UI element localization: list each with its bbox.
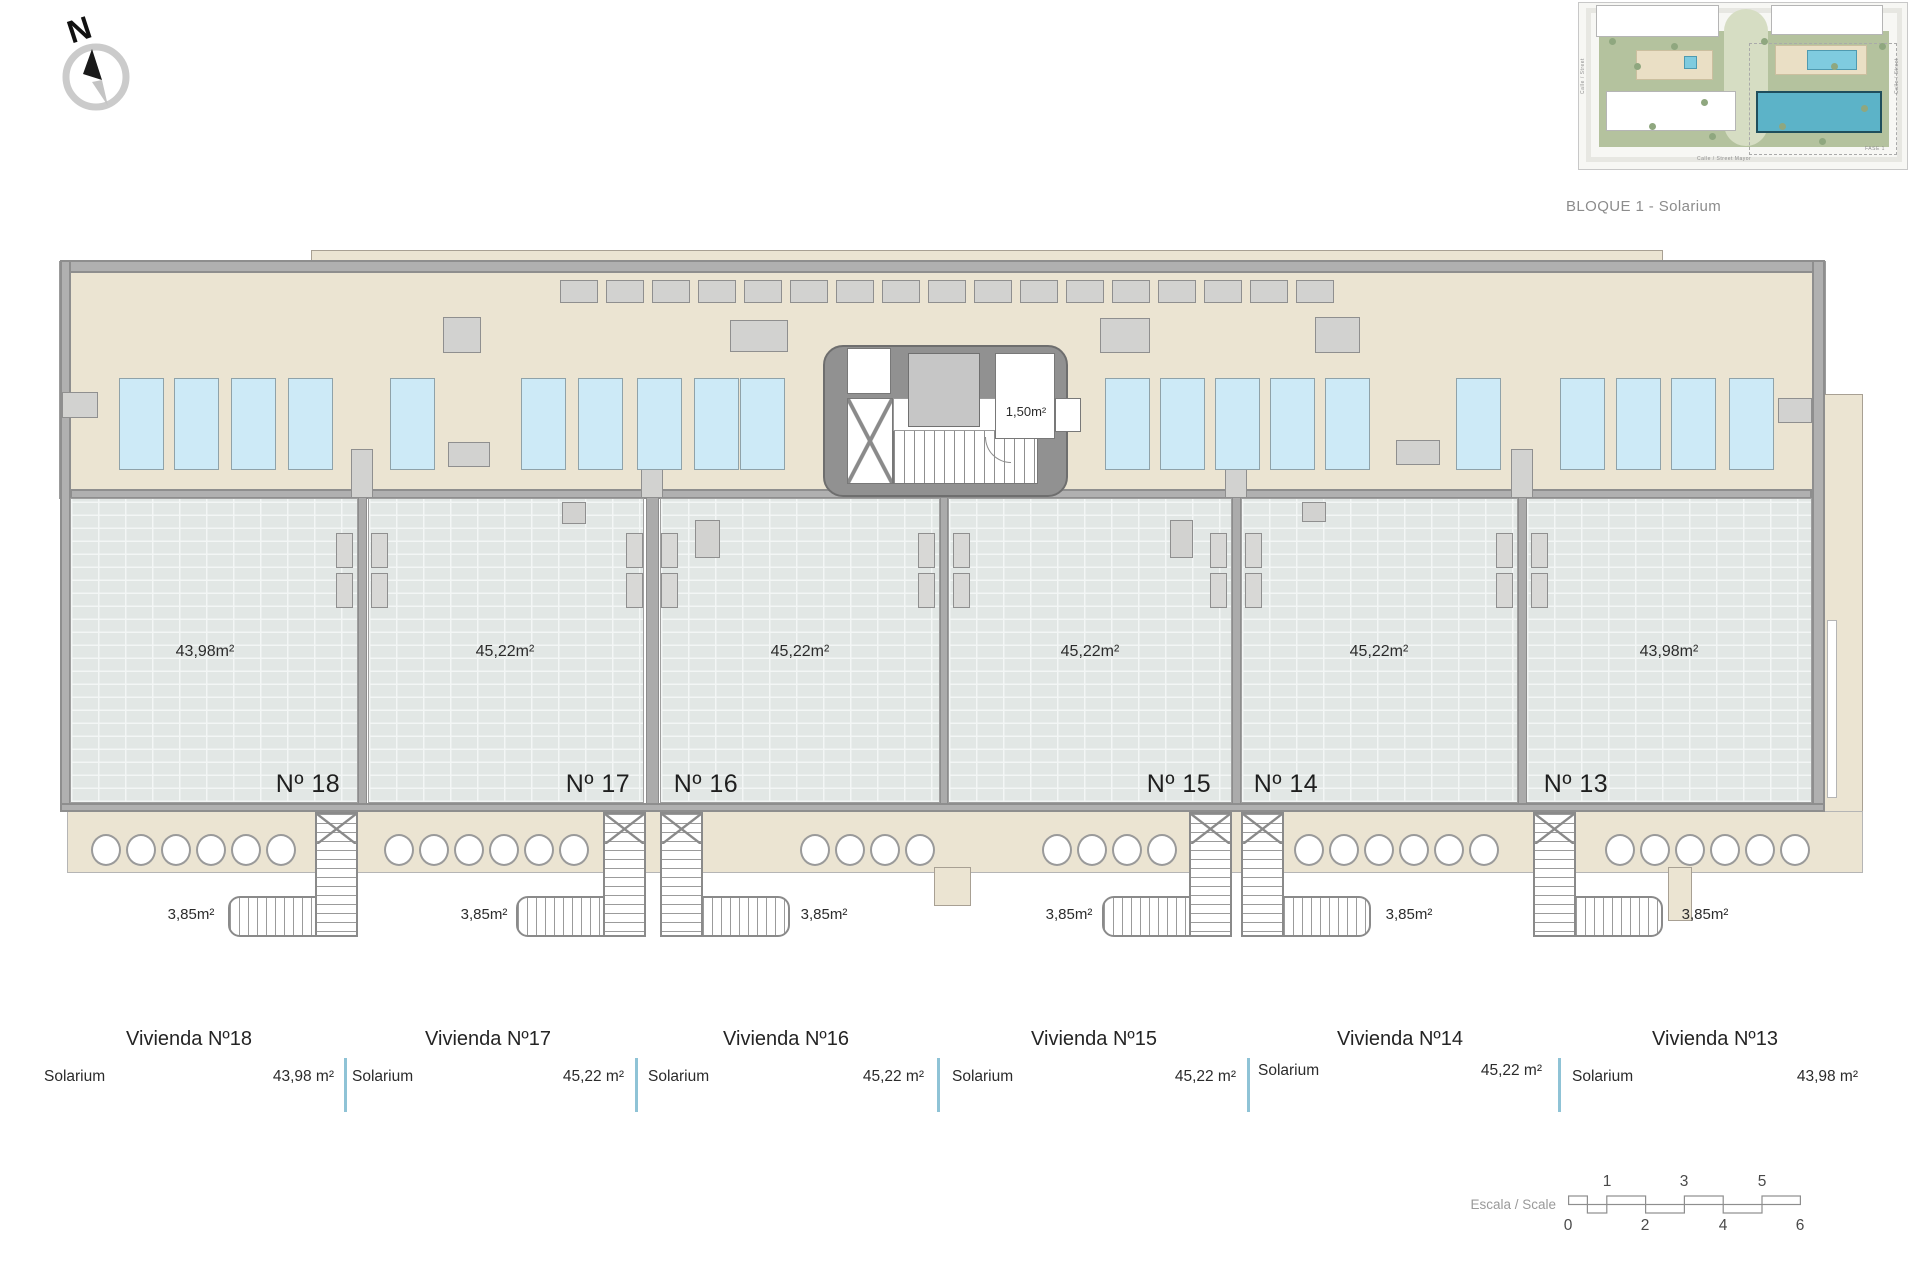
outer-wall-top	[60, 260, 1825, 273]
legend-column-16: Vivienda Nº16 Solarium45,22 m²	[648, 1028, 924, 1086]
solar-panel	[1325, 378, 1370, 470]
sun-lounger	[1210, 533, 1227, 568]
divider-pillar	[1511, 449, 1533, 498]
terrace-vent-box	[1302, 502, 1326, 522]
planter-circle	[524, 834, 554, 866]
legend-separator	[1247, 1058, 1250, 1112]
sun-lounger	[626, 533, 643, 568]
planter-circle	[231, 834, 261, 866]
planter-circle	[489, 834, 519, 866]
legend-title: Vivienda Nº14	[1258, 1028, 1542, 1051]
deck-machine-box	[730, 320, 788, 352]
sun-lounger	[371, 573, 388, 608]
deck-equipment-unit	[882, 280, 920, 303]
stair-tower-winder	[1191, 814, 1230, 844]
planter-circle	[1147, 834, 1177, 866]
core-winder-lines	[848, 399, 892, 483]
deck-equipment-unit	[836, 280, 874, 303]
sun-lounger	[918, 533, 935, 568]
planter-circle	[196, 834, 226, 866]
terrace-vent-box	[695, 520, 720, 558]
planter-circle	[835, 834, 865, 866]
stair-tower-winder	[1243, 814, 1282, 844]
solar-panel	[637, 378, 682, 470]
planter-circle	[1605, 834, 1635, 866]
legend-title: Vivienda Nº17	[352, 1028, 624, 1051]
solar-panel	[1671, 378, 1716, 470]
terrace-divider-wall	[646, 498, 659, 803]
unit-number-label-14: Nº 14	[1216, 770, 1356, 799]
sun-lounger	[661, 533, 678, 568]
stair-area-label-15: 3,85m²	[1009, 906, 1129, 923]
sun-lounger	[626, 573, 643, 608]
scale-tick: 1	[1595, 1173, 1619, 1191]
legend-row-value: 45,22 m²	[863, 1068, 924, 1086]
planter-circle	[384, 834, 414, 866]
scale-tick: 5	[1750, 1173, 1774, 1191]
planter-circle	[1434, 834, 1464, 866]
scale-tick: 2	[1633, 1217, 1657, 1235]
planter-circle	[1112, 834, 1142, 866]
planter-circle	[1780, 834, 1810, 866]
planter-circle	[870, 834, 900, 866]
legend-title: Vivienda Nº16	[648, 1028, 924, 1051]
terrace-area-label-13: 43,98m²	[1599, 643, 1739, 661]
sun-lounger	[1245, 573, 1262, 608]
solar-panel	[390, 378, 435, 470]
planter-circle	[1077, 834, 1107, 866]
legend-title: Vivienda Nº15	[952, 1028, 1236, 1051]
stair-area-label-13: 3,85m²	[1645, 906, 1765, 923]
planter-circle	[800, 834, 830, 866]
deck-equipment-unit	[1112, 280, 1150, 303]
legend-row-label: Solarium	[1572, 1068, 1633, 1086]
deck-vent-box	[448, 442, 490, 467]
deck-equipment-unit	[1204, 280, 1242, 303]
deck-equipment-unit	[790, 280, 828, 303]
planter-circle	[1675, 834, 1705, 866]
scale-tick: 0	[1556, 1217, 1580, 1235]
legend-separator	[937, 1058, 940, 1112]
sun-lounger	[336, 533, 353, 568]
scale-tick: 4	[1711, 1217, 1735, 1235]
legend-row-label: Solarium	[952, 1068, 1013, 1086]
terrace-bottom-wall	[60, 803, 1825, 812]
core-room	[847, 348, 891, 394]
deck-equipment-unit	[1066, 280, 1104, 303]
legend-row-value: 43,98 m²	[1797, 1068, 1858, 1086]
legend-column-13: Vivienda Nº13 Solarium43,98 m²	[1572, 1028, 1858, 1086]
sun-lounger	[371, 533, 388, 568]
stair-area-label-17: 3,85m²	[424, 906, 544, 923]
solar-panel	[231, 378, 276, 470]
terrace-area-label-16: 45,22m²	[730, 643, 870, 661]
solar-panel	[1270, 378, 1315, 470]
sun-lounger	[1245, 533, 1262, 568]
sun-lounger	[336, 573, 353, 608]
legend-separator	[1558, 1058, 1561, 1112]
sun-lounger	[1531, 533, 1548, 568]
stair-area-label-16: 3,85m²	[764, 906, 884, 923]
solar-panel	[1160, 378, 1205, 470]
terrace-divider-wall	[940, 498, 948, 803]
sun-lounger	[1531, 573, 1548, 608]
deck-vent-box	[1396, 440, 1440, 465]
sun-lounger	[661, 573, 678, 608]
stair-area-label-14: 3,85m²	[1349, 906, 1469, 923]
terrace-area-label-17: 45,22m²	[435, 643, 575, 661]
planter-circle	[1329, 834, 1359, 866]
solar-panel	[1729, 378, 1774, 470]
core-door-stub	[1055, 398, 1081, 432]
sun-lounger	[1496, 573, 1513, 608]
planter-circle	[559, 834, 589, 866]
sun-lounger	[918, 573, 935, 608]
terrace-vent-box	[1170, 520, 1193, 558]
right-annex-slot	[1827, 620, 1837, 798]
planter-circle	[266, 834, 296, 866]
planter-circle	[419, 834, 449, 866]
legend-column-17: Vivienda Nº17 Solarium45,22 m²	[352, 1028, 624, 1086]
planter-circle	[454, 834, 484, 866]
deck-equipment-unit	[560, 280, 598, 303]
stair-tower-winder	[605, 814, 644, 844]
planter-circle	[1399, 834, 1429, 866]
divider-pillar	[351, 449, 373, 498]
planter-circle	[1745, 834, 1775, 866]
deck-machine-box	[443, 317, 481, 353]
legend-title: Vivienda Nº18	[44, 1028, 334, 1051]
solar-panel	[1105, 378, 1150, 470]
solar-panel	[694, 378, 739, 470]
solar-panel	[174, 378, 219, 470]
terrace-area-label-14: 45,22m²	[1309, 643, 1449, 661]
stair-tower-winder	[317, 814, 356, 844]
deck-equipment-unit	[1250, 280, 1288, 303]
deck-equipment-unit	[1020, 280, 1058, 303]
floorplan-canvas	[0, 0, 1920, 1280]
scale-tick: 6	[1788, 1217, 1812, 1235]
sun-lounger	[1210, 573, 1227, 608]
legend-row-label: Solarium	[352, 1068, 413, 1086]
solar-panel	[578, 378, 623, 470]
stair-area-label-18: 3,85m²	[131, 906, 251, 923]
deck-vent-box	[1778, 398, 1812, 423]
legend-separator	[344, 1058, 347, 1112]
terrace-divider-wall	[358, 498, 367, 803]
stair-tower-winder	[1535, 814, 1574, 844]
sun-lounger	[953, 533, 970, 568]
planter-circle	[1710, 834, 1740, 866]
unit-number-label-13: Nº 13	[1506, 770, 1646, 799]
solar-panel	[1616, 378, 1661, 470]
terrace-divider-wall	[1518, 498, 1527, 803]
deck-equipment-unit	[928, 280, 966, 303]
solar-panel	[1560, 378, 1605, 470]
solar-panel	[740, 378, 785, 470]
planter-circle	[905, 834, 935, 866]
planter-circle	[161, 834, 191, 866]
legend-row-value: 45,22 m²	[563, 1068, 624, 1086]
terrace-divider-wall	[1232, 498, 1241, 803]
unit-number-label-16: Nº 16	[636, 770, 776, 799]
legend-column-14: Vivienda Nº14 Solarium45,22 m²	[1258, 1028, 1542, 1086]
planter-circle	[1364, 834, 1394, 866]
deck-vent-box	[62, 392, 98, 418]
legend-column-18: Vivienda Nº18 Solarium43,98 m²	[44, 1028, 334, 1086]
outer-wall-right	[1812, 260, 1825, 812]
deck-equipment-unit	[652, 280, 690, 303]
floorplan-page: N Calle / Street Mayor Calle / Street Ca…	[0, 0, 1920, 1280]
solar-panel	[119, 378, 164, 470]
solar-panel	[521, 378, 566, 470]
scale-label: Escala / Scale	[1441, 1197, 1556, 1212]
legend-row-label: Solarium	[44, 1068, 105, 1086]
solar-panel	[1215, 378, 1260, 470]
legend-row-value: 45,22 m²	[1481, 1062, 1542, 1080]
terrace-area-label-18: 43,98m²	[135, 643, 275, 661]
planter-circle	[91, 834, 121, 866]
legend-row-value: 43,98 m²	[273, 1068, 334, 1086]
core-wc-room	[995, 353, 1055, 439]
planter-circle	[126, 834, 156, 866]
deck-equipment-unit	[606, 280, 644, 303]
planter-circle	[1294, 834, 1324, 866]
terrace-area-label-15: 45,22m²	[1020, 643, 1160, 661]
planter-circle	[1042, 834, 1072, 866]
unit-number-label-18: Nº 18	[238, 770, 378, 799]
deck-equipment-unit	[1296, 280, 1334, 303]
legend-column-15: Vivienda Nº15 Solarium45,22 m²	[952, 1028, 1236, 1086]
elevator-shaft	[908, 353, 980, 427]
legend-row-label: Solarium	[1258, 1062, 1319, 1080]
deck-machine-box	[1315, 317, 1360, 353]
legend-row-label: Solarium	[648, 1068, 709, 1086]
deck-equipment-unit	[1158, 280, 1196, 303]
sun-lounger	[1496, 533, 1513, 568]
scale-tick: 3	[1672, 1173, 1696, 1191]
deck-equipment-unit	[698, 280, 736, 303]
legend-separator	[635, 1058, 638, 1112]
sun-lounger	[953, 573, 970, 608]
solar-panel	[1456, 378, 1501, 470]
legend-row-value: 45,22 m²	[1175, 1068, 1236, 1086]
legend-title: Vivienda Nº13	[1572, 1028, 1858, 1051]
deck-machine-box	[1100, 318, 1150, 353]
walkway-center-tab	[935, 868, 970, 905]
deck-equipment-unit	[744, 280, 782, 303]
terrace-vent-box	[562, 502, 586, 524]
planter-circle	[1469, 834, 1499, 866]
solar-panel	[288, 378, 333, 470]
core-room-area-label: 1,50m²	[995, 404, 1057, 419]
stair-tower-winder	[662, 814, 701, 844]
scale-bar-graphic	[1568, 1195, 1801, 1215]
deck-equipment-unit	[974, 280, 1012, 303]
planter-circle	[1640, 834, 1670, 866]
